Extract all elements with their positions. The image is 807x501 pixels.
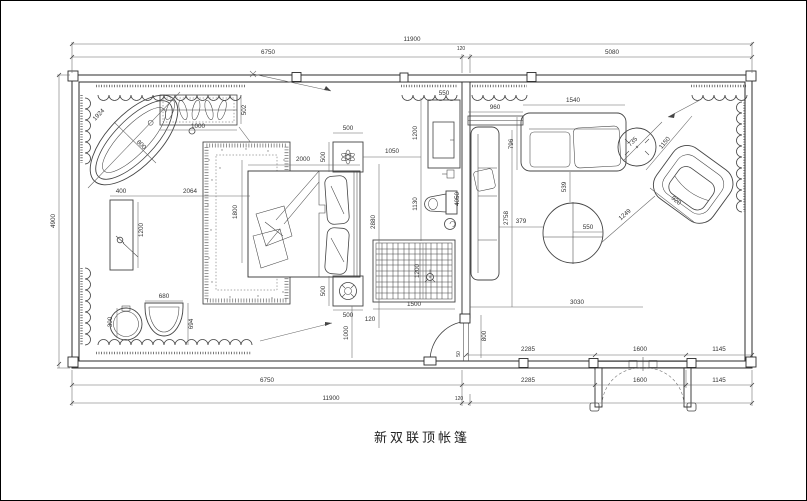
dim-bottom-left: 6750 xyxy=(260,377,275,384)
dim-bottom-mid-a: 2285 xyxy=(521,377,536,384)
curtain-top-mid-right xyxy=(472,95,527,101)
round-basin xyxy=(110,306,142,340)
floor-plan-drawing: 11900 6750 120 5080 4900 1924 800 1000 5… xyxy=(0,0,807,501)
wall-post xyxy=(292,73,301,82)
dim-nightstand-to-wall: 1000 xyxy=(343,326,350,341)
floor-drain-icon xyxy=(445,219,456,230)
tv-cabinet xyxy=(428,100,460,178)
dim-bottom-inner-b: 1600 xyxy=(633,346,648,353)
dim-sink-width: 680 xyxy=(159,293,170,300)
corner-post xyxy=(746,357,756,367)
dim-vanity-length: 1200 xyxy=(138,223,145,238)
coffee-table xyxy=(543,202,603,264)
dim-rug-depth: 1200 xyxy=(414,264,421,279)
wall-post xyxy=(527,73,536,82)
dim-sofa-width: 1540 xyxy=(566,97,581,104)
dim-vanity-width: 400 xyxy=(116,188,127,195)
lamp-icon xyxy=(340,283,357,300)
dim-chair-depth: 920 xyxy=(670,195,683,207)
dim-top-right: 5080 xyxy=(605,49,620,56)
drawing-title: 新双联顶帐篷 xyxy=(374,430,470,446)
corner-post xyxy=(746,71,756,81)
curtain-left-lower xyxy=(85,268,91,345)
planter-box xyxy=(160,95,237,125)
floor-plan-canvas: 11900 6750 120 5080 4900 1924 800 1000 5… xyxy=(0,0,807,501)
plant-icon xyxy=(341,150,356,164)
double-bed xyxy=(248,171,360,277)
switch-icon xyxy=(447,170,454,178)
dim-bottom-total: 11900 xyxy=(322,395,340,402)
sofa-lounge xyxy=(521,113,626,171)
corner-post xyxy=(68,71,78,81)
dim-planter-depth: 502 xyxy=(241,104,248,115)
dim-sink-depth: 694 xyxy=(188,318,195,329)
dim-sofa-side-to-table: 379 xyxy=(516,218,527,225)
dim-left-height: 4900 xyxy=(50,214,57,229)
dim-bottom-inner-c: 1145 xyxy=(712,346,726,353)
dim-tub-width: 800 xyxy=(135,139,148,152)
dim-bottom-inner-a: 2285 xyxy=(521,346,536,353)
dim-bottom-wall: 120 xyxy=(455,396,464,402)
dim-nightstand-bottom-d: 500 xyxy=(320,285,327,296)
dim-rug-width: 1500 xyxy=(407,301,422,308)
sofa-pillow xyxy=(473,168,496,192)
dim-vanity-to-bed: 2064 xyxy=(183,188,198,195)
toilet xyxy=(425,191,457,230)
dim-cabinet-length: 1200 xyxy=(412,126,419,141)
nightstand-top xyxy=(333,142,363,172)
dim-carpet-length: 1800 xyxy=(232,205,239,220)
dim-nightstand-offset: 120 xyxy=(365,316,376,323)
dim-nightstand-top-w: 500 xyxy=(343,125,354,132)
dim-bottom-mid-b: 1600 xyxy=(633,377,648,384)
interior-door xyxy=(424,314,470,365)
curtain-bottom-left xyxy=(98,340,252,345)
dim-bottom-mid-c: 1145 xyxy=(712,377,726,384)
seat-cushion xyxy=(573,126,621,168)
seat-cushion xyxy=(530,132,570,167)
door-jamb xyxy=(687,359,696,368)
dim-toilet-zone: 1130 xyxy=(412,197,419,211)
dim-cabinet-width: 550 xyxy=(439,90,450,97)
dim-sofa-to-table: 539 xyxy=(561,181,568,192)
corner-post xyxy=(68,357,78,367)
dim-chair-length: 1150 xyxy=(658,135,672,150)
dim-bed-axis: 2880 xyxy=(370,215,377,230)
door-leaf xyxy=(424,357,436,365)
dim-door-width: 800 xyxy=(481,330,488,341)
dim-top-total: 11900 xyxy=(403,36,421,43)
dim-basin: 300 xyxy=(107,316,114,327)
dim-bed-to-wall: 1050 xyxy=(385,148,400,155)
curtain-right-wall xyxy=(737,102,743,212)
dim-planter-width: 1000 xyxy=(191,123,206,130)
dim-table-to-chair: 1249 xyxy=(617,207,633,222)
dim-console: 960 xyxy=(490,104,501,111)
curtain-top-right xyxy=(692,95,747,101)
dim-sofa-depth: 796 xyxy=(508,138,515,149)
partition-wall xyxy=(462,82,470,318)
dim-living-width: 3030 xyxy=(570,299,585,306)
dimension-lines xyxy=(57,42,754,406)
dim-bed-width: 2000 xyxy=(296,156,311,163)
wall-post xyxy=(400,73,408,82)
dim-living-depth: 2758 xyxy=(503,211,510,226)
door-leaf xyxy=(684,368,691,407)
dim-table-diameter: 550 xyxy=(583,224,594,231)
curtain-left-upper xyxy=(85,98,91,164)
dim-door-offset: 50 xyxy=(456,351,462,357)
dim-nightstand-bottom-w: 500 xyxy=(343,312,354,319)
wall-post xyxy=(519,359,528,368)
dim-partition-length: 4050 xyxy=(454,192,461,207)
door-leaf xyxy=(595,368,602,407)
dim-tub-length: 1924 xyxy=(92,107,107,122)
dimension-labels: 11900 6750 120 5080 4900 1924 800 1000 5… xyxy=(50,36,726,402)
dim-top-left: 6750 xyxy=(261,49,276,56)
dim-nightstand-top-d: 500 xyxy=(320,151,327,162)
door-jamb xyxy=(589,359,598,368)
sofa-long xyxy=(471,127,499,280)
pedestal-sink xyxy=(145,303,183,336)
door-leaf xyxy=(460,314,470,323)
dim-top-wall: 120 xyxy=(457,46,466,52)
nightstand-bottom xyxy=(333,276,363,306)
vanity-counter xyxy=(110,200,138,270)
